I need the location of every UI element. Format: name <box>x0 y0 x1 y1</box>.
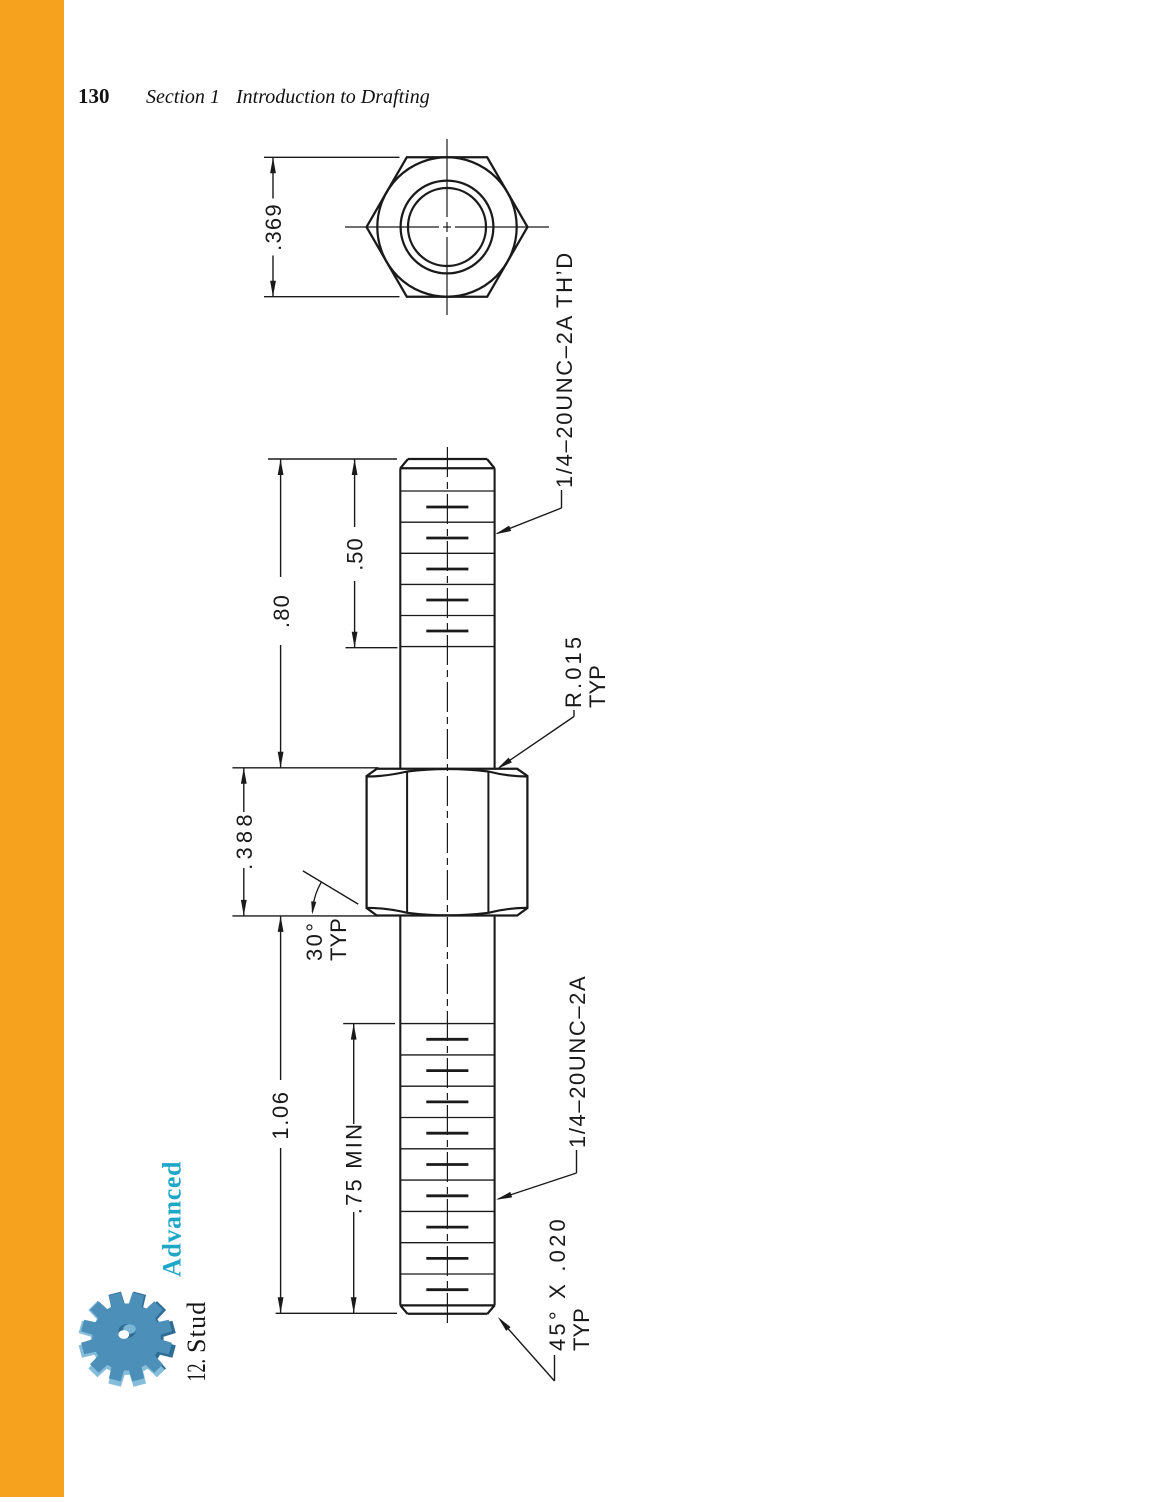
svg-text:1/4–20UNC–2A TH’D: 1/4–20UNC–2A TH’D <box>552 251 577 488</box>
svg-text:TYP: TYP <box>585 665 610 708</box>
svg-text:1/4–20UNC–2A: 1/4–20UNC–2A <box>565 975 590 1148</box>
svg-text:1.06: 1.06 <box>268 1090 293 1139</box>
svg-text:.50: .50 <box>342 537 367 571</box>
svg-text:130: 130 <box>78 84 110 108</box>
svg-text:45° X .020: 45° X .020 <box>545 1216 570 1351</box>
svg-text:.75 MIN: .75 MIN <box>342 1122 367 1214</box>
svg-text:.388: .388 <box>232 810 257 870</box>
svg-text:TYP: TYP <box>326 918 351 961</box>
svg-text:30°: 30° <box>302 921 327 961</box>
svg-text:Stud: Stud <box>182 1301 211 1353</box>
svg-text:Advanced: Advanced <box>158 1161 187 1277</box>
svg-text:.369: .369 <box>261 203 286 251</box>
svg-text:Introduction to Drafting: Introduction to Drafting <box>235 86 430 108</box>
svg-text:R.015: R.015 <box>561 634 586 708</box>
svg-text:Section 1: Section 1 <box>146 86 220 108</box>
svg-text:TYP: TYP <box>569 1308 594 1351</box>
svg-text:12.: 12. <box>182 1359 211 1382</box>
svg-text:.80: .80 <box>269 594 294 628</box>
